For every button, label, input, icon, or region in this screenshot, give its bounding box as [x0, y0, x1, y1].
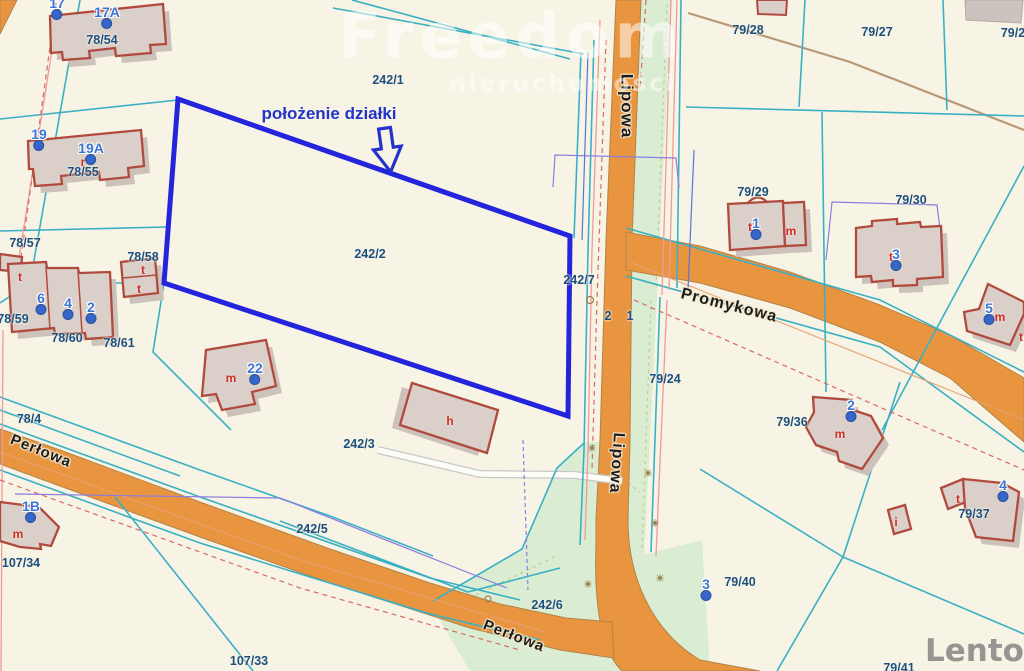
house-number-marker: 19A — [78, 141, 104, 165]
parcel-label: 79/41 — [883, 662, 914, 671]
marker-dot-icon — [984, 314, 995, 325]
parcel-label: 78/57 — [9, 237, 40, 250]
parcel-label: 78/59 — [0, 313, 29, 326]
building-letter: t — [141, 264, 145, 276]
building-letter: t — [137, 283, 141, 295]
house-number-marker: 6 — [36, 291, 47, 315]
building-letter: m — [13, 528, 24, 540]
building-letter: h — [446, 415, 453, 427]
house-number-marker: 1 — [751, 216, 762, 240]
marker-dot-icon — [51, 9, 62, 20]
building-letter: t — [956, 493, 960, 505]
parcel-label: 107/33 — [230, 655, 268, 668]
house-number-marker: 4 — [63, 296, 74, 320]
cadastral-map: 78/5478/5578/5778/5878/5978/6078/6178/41… — [0, 0, 1024, 671]
house-number-marker: 22 — [247, 361, 263, 385]
marker-dot-icon — [998, 491, 1009, 502]
parcel-label: 79/24 — [649, 373, 680, 386]
parcel-label: 78/54 — [86, 34, 117, 47]
parcel-label: 1 — [627, 310, 634, 323]
parcel-label: 78/58 — [127, 251, 158, 264]
parcel-label: 242/7 — [563, 274, 594, 287]
building-letter: m — [226, 372, 237, 384]
map-labels-layer: 78/5478/5578/5778/5878/5978/6078/6178/41… — [0, 0, 1024, 671]
lento-watermark: Lento pl — [925, 633, 1024, 669]
street-name-label: Perłowa — [8, 432, 73, 470]
lento-watermark-text: Lento — [925, 633, 1024, 669]
building-letter: m — [835, 428, 846, 440]
parcel-label: 2 — [605, 310, 612, 323]
parcel-label: 242/5 — [296, 523, 327, 536]
house-number-marker: 3 — [891, 247, 902, 271]
building-letter: t — [1019, 331, 1023, 343]
parcel-label: 242/1 — [372, 74, 403, 87]
freedom-watermark-tagline: nieruchomości — [449, 71, 676, 97]
marker-dot-icon — [63, 309, 74, 320]
marker-dot-icon — [701, 590, 712, 601]
freedom-watermark: Freedom — [339, 0, 686, 73]
parcel-label: 78/61 — [103, 337, 134, 350]
house-number-marker: 3 — [701, 577, 712, 601]
parcel-label: 78/4 — [17, 413, 41, 426]
parcel-label: 79/28 — [732, 24, 763, 37]
parcel-label: 79/27 — [861, 26, 892, 39]
house-number-marker: 1B — [22, 499, 40, 523]
marker-dot-icon — [33, 140, 44, 151]
house-number-marker: 17A — [94, 5, 120, 29]
parcel-label: 242/6 — [531, 599, 562, 612]
parcel-label: 79/37 — [958, 508, 989, 521]
parcel-label: 242/2 — [354, 248, 385, 261]
marker-dot-icon — [36, 304, 47, 315]
marker-dot-icon — [26, 512, 37, 523]
parcel-label: 242/3 — [343, 438, 374, 451]
marker-dot-icon — [751, 229, 762, 240]
street-name-label: Lipowa — [606, 432, 626, 494]
marker-dot-icon — [846, 411, 857, 422]
building-letter: m — [786, 225, 797, 237]
house-number-marker: 4 — [998, 478, 1009, 502]
street-name-label: Perłowa — [481, 617, 547, 654]
house-number-marker: 5 — [984, 301, 995, 325]
house-number-marker: 17 — [49, 0, 65, 20]
marker-dot-icon — [86, 154, 97, 165]
parcel-label: 79/29 — [737, 186, 768, 199]
marker-dot-icon — [86, 313, 97, 324]
house-number-marker: 2 — [86, 300, 97, 324]
parcel-label: 79/36 — [776, 416, 807, 429]
parcel-label: 79/30 — [895, 194, 926, 207]
building-letter: m — [995, 311, 1006, 323]
parcel-label: 79/2 — [1001, 27, 1024, 40]
building-letter: t — [18, 271, 22, 283]
parcel-label: 107/34 — [2, 557, 40, 570]
building-letter: i — [894, 516, 897, 528]
marker-dot-icon — [891, 260, 902, 271]
house-number-marker: 19 — [31, 127, 47, 151]
marker-dot-icon — [249, 374, 260, 385]
street-name-label: Promykowa — [679, 286, 779, 325]
parcel-label: 78/60 — [51, 332, 82, 345]
marker-dot-icon — [102, 18, 113, 29]
house-number-marker: 2 — [846, 398, 857, 422]
parcel-label: 79/40 — [724, 576, 755, 589]
plot-location-annotation: położenie działki — [261, 104, 396, 124]
